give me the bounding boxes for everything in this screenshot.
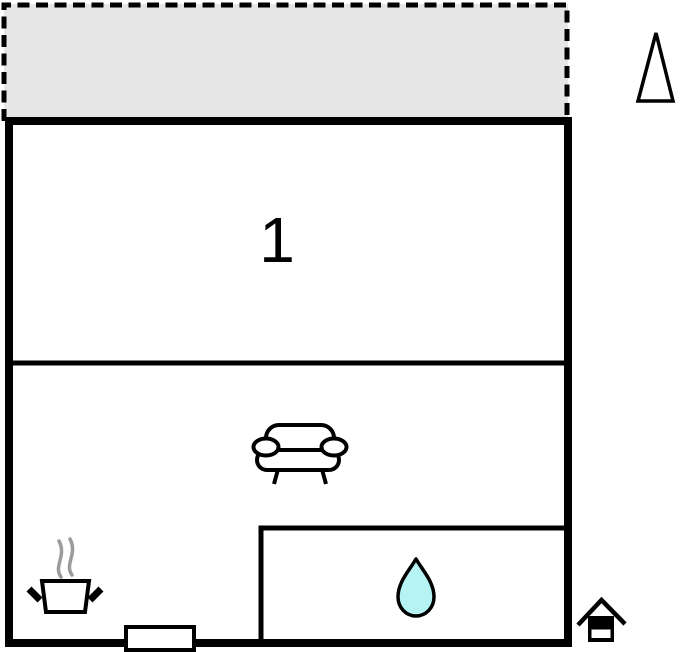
door-marker (126, 627, 194, 650)
terrace-area (4, 4, 568, 121)
north-arrow-icon (638, 33, 673, 101)
sofa-armrest-left (254, 439, 279, 456)
entrance-house-icon (578, 600, 625, 642)
sofa-armrest-right (322, 439, 347, 456)
room-label: 1 (259, 204, 295, 276)
pot-body (42, 581, 89, 612)
floor-plan-canvas: 1 (0, 0, 699, 652)
terrace-fill (4, 4, 568, 121)
house-window (592, 630, 611, 639)
floor-plan: 1 (0, 0, 699, 652)
building-outer-wall (9, 121, 568, 643)
house-body (588, 616, 614, 642)
